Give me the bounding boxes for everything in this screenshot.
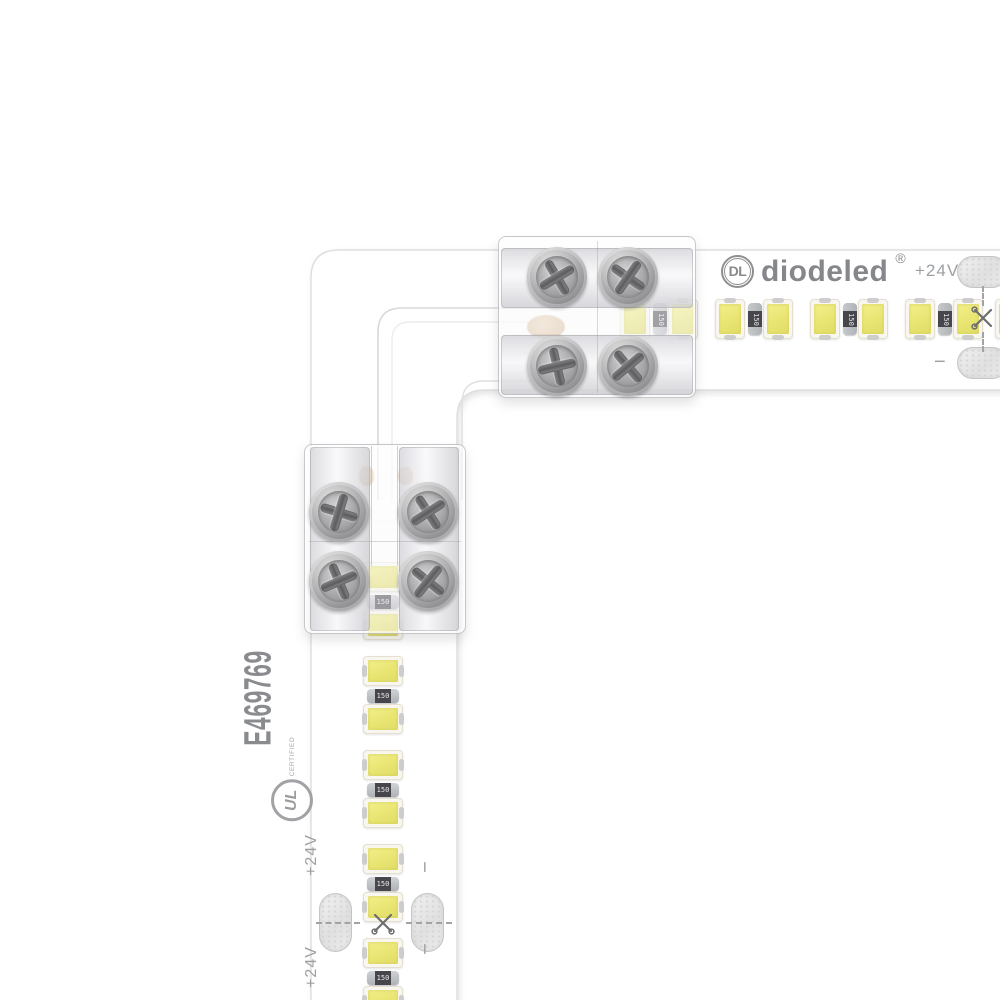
- resistor: 150: [843, 303, 857, 335]
- resistor: 150: [938, 303, 952, 335]
- led-chip: [363, 938, 403, 968]
- scissors-icon: [970, 305, 996, 331]
- led-phosphor: [909, 304, 931, 334]
- terminal-screw: [598, 247, 658, 307]
- terminal-screw: [398, 551, 458, 611]
- led-phosphor: [814, 304, 836, 334]
- ul-certified-text: CERTIFIED: [288, 737, 295, 777]
- resistor: 150: [367, 783, 399, 797]
- resistor-marking: 150: [843, 311, 857, 327]
- terminal-screw: [527, 247, 587, 307]
- resistor-marking: 150: [375, 877, 391, 891]
- led-phosphor: [368, 802, 398, 824]
- led-chip: [363, 844, 403, 874]
- cut-line: [406, 922, 452, 924]
- led-chip: [905, 299, 935, 339]
- led-phosphor: [719, 304, 741, 334]
- led-phosphor: [368, 754, 398, 776]
- led-chip: [715, 299, 745, 339]
- cut-line: [316, 922, 360, 924]
- scissors-icon: [370, 910, 396, 936]
- registered-trademark: ®: [895, 250, 905, 266]
- led-chip: [763, 299, 793, 339]
- led-chip: [363, 986, 403, 1000]
- led-phosphor: [862, 304, 884, 334]
- resistor-marking: 150: [375, 783, 391, 797]
- solder-pad: [957, 256, 1000, 288]
- resistor-marking: 150: [748, 311, 762, 327]
- voltage-label: +24V: [915, 261, 959, 281]
- terminal-screw: [309, 551, 369, 611]
- led-phosphor: [368, 942, 398, 964]
- terminal-screw: [398, 482, 458, 542]
- negative-label: −: [934, 351, 946, 374]
- led-phosphor: [368, 990, 398, 1000]
- components-layer: 150150150150150150150150150: [0, 0, 1000, 1000]
- brand-monogram-icon: DL: [721, 255, 754, 288]
- led-phosphor: [368, 708, 398, 730]
- led-chip: [363, 798, 403, 828]
- resistor: 150: [367, 877, 399, 891]
- connector-strip-slot: [371, 446, 398, 566]
- led-chip: [810, 299, 840, 339]
- led-phosphor: [368, 848, 398, 870]
- led-phosphor: [767, 304, 789, 334]
- led-chip: [858, 299, 888, 339]
- brand-name: diodeled: [761, 255, 888, 288]
- terminal-screw: [309, 482, 369, 542]
- ul-mark-icon: UL: [271, 779, 313, 821]
- resistor-marking: 150: [375, 971, 391, 985]
- led-phosphor: [368, 660, 398, 682]
- cut-line: [982, 332, 984, 352]
- terminal-screw: [598, 336, 658, 396]
- led-chip: [363, 656, 403, 686]
- product-photo-led-corner: 150150150150150150150150150 DL diodeled …: [0, 0, 1000, 1000]
- resistor: 150: [748, 303, 762, 335]
- led-chip: [363, 704, 403, 734]
- solder-pad: [957, 347, 1000, 379]
- screw-terminal-connector-bottom: [304, 444, 466, 634]
- brand-monogram: DL: [729, 263, 747, 279]
- resistor: 150: [367, 689, 399, 703]
- resistor-marking: 150: [938, 311, 952, 327]
- brand-logo: DL diodeled ®: [721, 254, 906, 288]
- connector-strip-slot: [500, 309, 622, 334]
- resistor: 150: [367, 971, 399, 985]
- screw-terminal-connector-top: [498, 236, 696, 398]
- cut-line: [982, 286, 984, 306]
- terminal-screw: [527, 336, 587, 396]
- led-chip: [363, 750, 403, 780]
- resistor-marking: 150: [375, 689, 391, 703]
